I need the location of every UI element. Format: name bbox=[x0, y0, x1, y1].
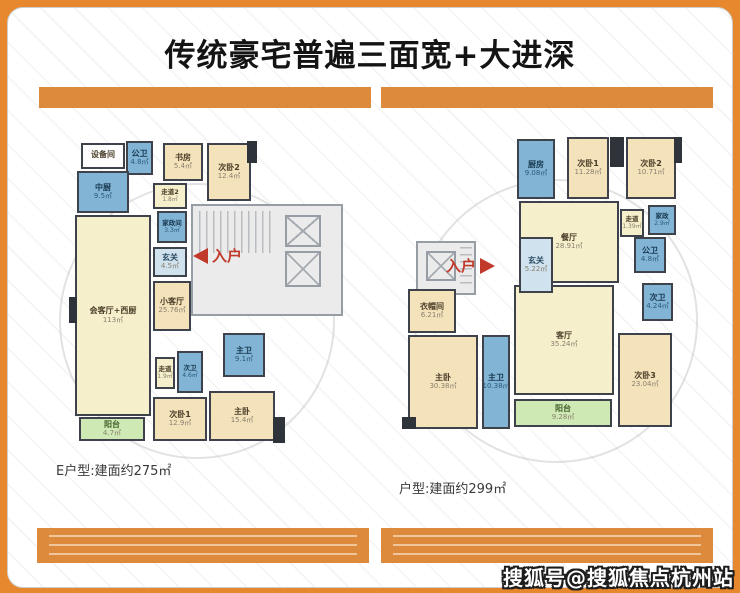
room-master-bath: 主卫10.38㎡ bbox=[482, 335, 510, 429]
floor-plan-left: 设备间 公卫4.8㎡ 书房5.4㎡ 次卧212.4㎡ 中厨9.5㎡ 走道21.8… bbox=[51, 119, 351, 454]
entry-marker: 入户 bbox=[193, 245, 242, 266]
top-bar-left bbox=[39, 87, 371, 108]
page: { "title": "传统豪宅普遍三面宽+大进深", "watermark":… bbox=[0, 0, 740, 593]
room-balcony: 阳台4.7㎡ bbox=[79, 417, 145, 441]
wall-block bbox=[402, 417, 416, 429]
room-master-bedroom: 主卧15.4㎡ bbox=[209, 391, 275, 441]
disclaimer-bar-left bbox=[37, 528, 369, 563]
room-chinese-kitchen: 中厨9.5㎡ bbox=[77, 171, 129, 213]
room-equipment: 设备间 bbox=[81, 143, 125, 169]
room-second-bath: 次卫4.6㎡ bbox=[177, 351, 203, 393]
wall-block bbox=[69, 297, 77, 323]
room-corridor: 走道1.39㎡ bbox=[620, 209, 644, 237]
disclaimer-bar-right bbox=[381, 528, 713, 563]
wall-block bbox=[674, 137, 682, 163]
entry-arrow-icon bbox=[480, 258, 495, 274]
wall-block bbox=[273, 417, 285, 443]
entry-arrow-icon bbox=[193, 248, 208, 264]
entry-label: 入户 bbox=[446, 255, 476, 276]
wall-block bbox=[610, 137, 624, 167]
room-bedroom3: 次卧323.04㎡ bbox=[618, 333, 672, 427]
room-master-bath: 主卫9.1㎡ bbox=[223, 333, 265, 377]
room-small-living: 小客厅25.76㎡ bbox=[153, 281, 191, 331]
room-living: 客厅35.24㎡ bbox=[514, 285, 614, 395]
room-foyer: 玄关5.22㎡ bbox=[519, 237, 553, 293]
room-study: 书房5.4㎡ bbox=[163, 143, 203, 181]
room-corridor: 走道1.9㎡ bbox=[155, 357, 175, 389]
page-title: 传统豪宅普遍三面宽+大进深 bbox=[8, 30, 732, 75]
room-second-bath: 次卫4.24㎡ bbox=[642, 283, 673, 321]
entry-marker: 入户 bbox=[446, 255, 495, 276]
room-bedroom2: 次卧212.4㎡ bbox=[207, 143, 251, 201]
elevator-shaft bbox=[285, 251, 321, 287]
entry-label: 入户 bbox=[212, 245, 242, 266]
wall-block bbox=[247, 141, 257, 163]
room-housekeeping: 家政2.9㎡ bbox=[648, 205, 676, 235]
room-public-bath: 公卫4.8㎡ bbox=[126, 141, 153, 175]
room-master-bedroom: 主卧30.38㎡ bbox=[408, 335, 478, 429]
room-bedroom1: 次卧112.9㎡ bbox=[153, 397, 207, 441]
right-plan-caption: 户型:建面约299㎡ bbox=[399, 478, 506, 497]
room-bedroom2: 次卧210.71㎡ bbox=[626, 137, 676, 199]
room-kitchen: 厨房9.08㎡ bbox=[517, 139, 555, 199]
floor-plan-right: 厨房9.08㎡ 次卧111.28㎡ 次卧210.71㎡ 走道1.39㎡ 家政2.… bbox=[394, 113, 714, 458]
content-card: 传统豪宅普遍三面宽+大进深 设备间 公卫4.8㎡ 书房5.4㎡ 次卧212.4㎡… bbox=[7, 7, 733, 588]
left-plan-caption: E户型:建面约275㎡ bbox=[56, 460, 171, 479]
room-balcony: 阳台9.28㎡ bbox=[514, 399, 612, 427]
watermark-text: 搜狐号@搜狐焦点杭州站 bbox=[503, 562, 734, 591]
room-corridor2: 走道21.8㎡ bbox=[153, 183, 187, 209]
room-public-bath: 公卫4.8㎡ bbox=[634, 237, 666, 273]
elevator-shaft bbox=[285, 215, 321, 247]
room-bedroom1: 次卧111.28㎡ bbox=[567, 137, 609, 199]
room-cloakroom: 衣帽间6.21㎡ bbox=[408, 289, 456, 333]
top-bar-right bbox=[381, 87, 713, 108]
room-foyer: 玄关4.5㎡ bbox=[153, 247, 187, 277]
room-housekeeping: 家政间3.3㎡ bbox=[157, 211, 187, 243]
room-reception-west-kitchen: 会客厅+西厨113㎡ bbox=[75, 215, 151, 416]
